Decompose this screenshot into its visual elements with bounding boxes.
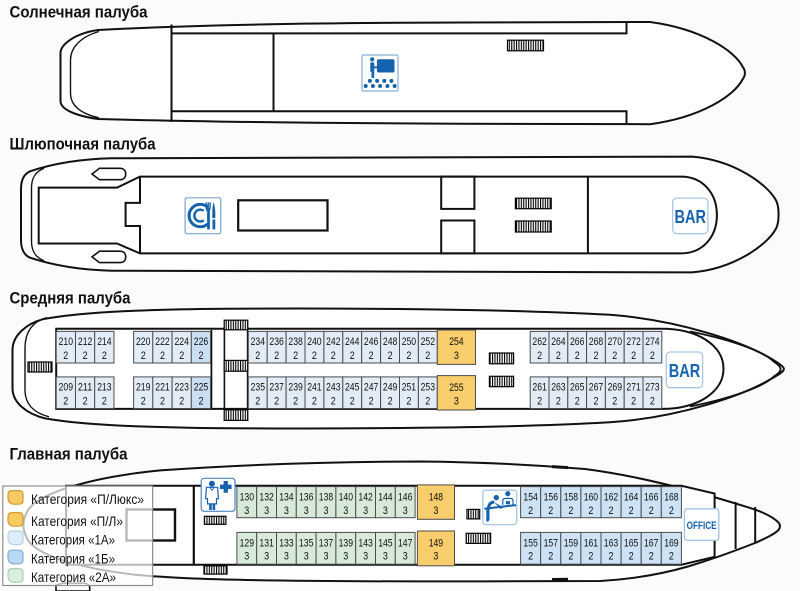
svg-text:145: 145 [378, 537, 392, 549]
svg-text:2: 2 [369, 350, 374, 362]
svg-text:136: 136 [299, 492, 313, 504]
svg-text:3: 3 [433, 551, 438, 563]
svg-text:239: 239 [288, 382, 302, 394]
svg-text:261: 261 [532, 382, 546, 394]
svg-text:Шлюпочная палуба: Шлюпочная палуба [10, 136, 157, 154]
svg-text:225: 225 [194, 382, 208, 394]
svg-text:2: 2 [568, 505, 573, 517]
svg-text:BAR: BAR [669, 361, 701, 381]
svg-text:254: 254 [449, 336, 463, 348]
svg-text:2: 2 [350, 350, 355, 362]
svg-text:210: 210 [59, 336, 73, 348]
svg-text:2: 2 [612, 395, 617, 407]
svg-text:2: 2 [274, 395, 279, 407]
svg-text:265: 265 [570, 382, 584, 394]
svg-text:2: 2 [629, 551, 634, 563]
svg-text:2: 2 [669, 505, 674, 517]
svg-text:270: 270 [608, 336, 622, 348]
svg-text:BAR: BAR [675, 207, 707, 227]
svg-text:2: 2 [63, 350, 68, 362]
svg-text:2: 2 [649, 551, 654, 563]
svg-text:273: 273 [645, 382, 659, 394]
svg-text:264: 264 [551, 336, 565, 348]
svg-text:2: 2 [548, 551, 553, 563]
svg-text:2: 2 [528, 551, 533, 563]
svg-text:134: 134 [279, 492, 293, 504]
svg-text:213: 213 [97, 382, 111, 394]
svg-text:3: 3 [244, 505, 249, 517]
svg-text:2: 2 [594, 350, 599, 362]
svg-text:2: 2 [649, 505, 654, 517]
svg-text:237: 237 [269, 382, 283, 394]
svg-text:164: 164 [624, 492, 638, 504]
svg-text:138: 138 [319, 492, 333, 504]
svg-text:2: 2 [650, 395, 655, 407]
svg-text:158: 158 [564, 492, 578, 504]
svg-text:3: 3 [383, 551, 388, 563]
svg-text:2: 2 [331, 350, 336, 362]
svg-text:2: 2 [102, 350, 107, 362]
svg-text:2: 2 [255, 395, 260, 407]
svg-text:212: 212 [78, 336, 92, 348]
svg-text:2: 2 [331, 395, 336, 407]
svg-text:3: 3 [324, 551, 329, 563]
svg-text:222: 222 [155, 336, 169, 348]
svg-text:166: 166 [644, 492, 658, 504]
svg-text:255: 255 [449, 382, 463, 394]
svg-text:223: 223 [175, 382, 189, 394]
svg-text:133: 133 [279, 537, 293, 549]
svg-text:262: 262 [532, 336, 546, 348]
svg-text:3: 3 [454, 395, 459, 407]
svg-text:2: 2 [537, 395, 542, 407]
svg-text:3: 3 [264, 505, 269, 517]
svg-text:209: 209 [59, 382, 73, 394]
svg-text:Солнечная палуба: Солнечная палуба [10, 4, 149, 22]
svg-text:2: 2 [537, 350, 542, 362]
svg-text:2: 2 [556, 350, 561, 362]
svg-text:242: 242 [326, 336, 340, 348]
svg-text:2: 2 [141, 395, 146, 407]
svg-text:214: 214 [97, 336, 111, 348]
svg-text:2: 2 [425, 395, 430, 407]
svg-text:2: 2 [612, 350, 617, 362]
svg-text:266: 266 [570, 336, 584, 348]
svg-text:211: 211 [78, 382, 92, 394]
svg-text:245: 245 [345, 382, 359, 394]
svg-text:3: 3 [383, 505, 388, 517]
svg-text:3: 3 [363, 551, 368, 563]
svg-text:2: 2 [312, 395, 317, 407]
svg-text:2: 2 [293, 350, 298, 362]
svg-text:3: 3 [454, 350, 459, 362]
svg-text:248: 248 [383, 336, 397, 348]
svg-text:159: 159 [564, 537, 578, 549]
svg-text:2: 2 [350, 395, 355, 407]
svg-text:3: 3 [403, 505, 408, 517]
svg-text:2: 2 [575, 395, 580, 407]
svg-text:2: 2 [588, 551, 593, 563]
svg-text:240: 240 [307, 336, 321, 348]
svg-text:130: 130 [240, 492, 254, 504]
svg-text:2: 2 [63, 395, 68, 407]
svg-text:2: 2 [388, 395, 393, 407]
svg-text:165: 165 [624, 537, 638, 549]
svg-text:2: 2 [160, 395, 165, 407]
svg-text:2: 2 [141, 350, 146, 362]
svg-text:168: 168 [664, 492, 678, 504]
svg-text:161: 161 [584, 537, 598, 549]
svg-text:249: 249 [383, 382, 397, 394]
svg-text:221: 221 [155, 382, 169, 394]
svg-text:Главная палуба: Главная палуба [10, 445, 129, 463]
svg-text:238: 238 [288, 336, 302, 348]
svg-text:2: 2 [179, 395, 184, 407]
svg-text:139: 139 [339, 537, 353, 549]
svg-text:3: 3 [284, 505, 289, 517]
svg-text:268: 268 [589, 336, 603, 348]
svg-text:235: 235 [251, 382, 265, 394]
svg-text:2: 2 [406, 395, 411, 407]
svg-text:241: 241 [307, 382, 321, 394]
svg-text:251: 251 [402, 382, 416, 394]
svg-text:224: 224 [175, 336, 189, 348]
svg-text:167: 167 [644, 537, 658, 549]
svg-text:Средняя палуба: Средняя палуба [10, 290, 132, 308]
svg-text:247: 247 [364, 382, 378, 394]
svg-text:244: 244 [345, 336, 359, 348]
svg-text:OFFICE: OFFICE [687, 520, 717, 532]
svg-text:131: 131 [259, 537, 273, 549]
svg-text:149: 149 [429, 537, 443, 549]
svg-text:3: 3 [284, 551, 289, 563]
svg-text:2: 2 [650, 350, 655, 362]
svg-text:274: 274 [645, 336, 659, 348]
svg-text:132: 132 [259, 492, 273, 504]
svg-text:2: 2 [293, 395, 298, 407]
svg-text:3: 3 [244, 551, 249, 563]
svg-text:219: 219 [136, 382, 150, 394]
svg-text:272: 272 [626, 336, 640, 348]
svg-text:157: 157 [544, 537, 558, 549]
svg-text:226: 226 [194, 336, 208, 348]
svg-text:263: 263 [551, 382, 565, 394]
svg-text:2: 2 [629, 505, 634, 517]
svg-text:2: 2 [631, 395, 636, 407]
svg-text:3: 3 [363, 505, 368, 517]
svg-text:236: 236 [269, 336, 283, 348]
svg-text:2: 2 [179, 350, 184, 362]
svg-text:2: 2 [102, 395, 107, 407]
svg-text:2: 2 [312, 350, 317, 362]
svg-text:169: 169 [664, 537, 678, 549]
svg-text:3: 3 [324, 505, 329, 517]
svg-text:3: 3 [403, 551, 408, 563]
svg-text:234: 234 [251, 336, 265, 348]
svg-text:2: 2 [594, 395, 599, 407]
svg-text:160: 160 [584, 492, 598, 504]
svg-text:3: 3 [433, 505, 438, 517]
svg-text:2: 2 [199, 395, 204, 407]
svg-text:2: 2 [631, 350, 636, 362]
svg-text:2: 2 [556, 395, 561, 407]
svg-text:220: 220 [136, 336, 150, 348]
svg-text:2: 2 [609, 551, 614, 563]
svg-text:129: 129 [240, 537, 254, 549]
svg-text:2: 2 [369, 395, 374, 407]
svg-text:156: 156 [544, 492, 558, 504]
svg-text:3: 3 [343, 505, 348, 517]
svg-text:3: 3 [304, 505, 309, 517]
svg-text:2: 2 [160, 350, 165, 362]
svg-text:267: 267 [589, 382, 603, 394]
svg-text:148: 148 [429, 492, 443, 504]
svg-text:154: 154 [523, 492, 537, 504]
svg-text:2: 2 [83, 350, 88, 362]
svg-text:2: 2 [255, 350, 260, 362]
svg-text:Категория «П/Люкс»: Категория «П/Люкс» [31, 491, 144, 507]
svg-text:2: 2 [199, 350, 204, 362]
svg-text:252: 252 [421, 336, 435, 348]
svg-text:142: 142 [358, 492, 372, 504]
svg-text:135: 135 [299, 537, 313, 549]
svg-text:269: 269 [608, 382, 622, 394]
svg-text:162: 162 [604, 492, 618, 504]
svg-text:2: 2 [548, 505, 553, 517]
svg-text:147: 147 [398, 537, 412, 549]
svg-text:2: 2 [406, 350, 411, 362]
svg-text:2: 2 [568, 551, 573, 563]
svg-text:3: 3 [343, 551, 348, 563]
svg-text:271: 271 [626, 382, 640, 394]
svg-text:246: 246 [364, 336, 378, 348]
svg-text:2: 2 [609, 505, 614, 517]
svg-text:140: 140 [339, 492, 353, 504]
svg-text:143: 143 [358, 537, 372, 549]
svg-text:163: 163 [604, 537, 618, 549]
svg-text:Категория «П/Л»: Категория «П/Л» [31, 513, 123, 529]
svg-text:146: 146 [398, 492, 412, 504]
svg-text:2: 2 [575, 350, 580, 362]
svg-text:2: 2 [274, 350, 279, 362]
svg-text:2: 2 [588, 505, 593, 517]
svg-text:Категория «1А»: Категория «1А» [31, 531, 115, 547]
svg-text:3: 3 [304, 551, 309, 563]
svg-text:250: 250 [402, 336, 416, 348]
svg-text:2: 2 [669, 551, 674, 563]
svg-text:2: 2 [388, 350, 393, 362]
svg-text:144: 144 [378, 492, 392, 504]
svg-text:3: 3 [264, 551, 269, 563]
svg-text:155: 155 [523, 537, 537, 549]
svg-text:253: 253 [421, 382, 435, 394]
svg-text:2: 2 [425, 350, 430, 362]
svg-text:2: 2 [528, 505, 533, 517]
svg-text:243: 243 [326, 382, 340, 394]
svg-text:Категория «2А»: Категория «2А» [31, 569, 116, 585]
svg-text:Категория «1Б»: Категория «1Б» [31, 551, 115, 567]
svg-text:2: 2 [83, 395, 88, 407]
svg-text:137: 137 [319, 537, 333, 549]
